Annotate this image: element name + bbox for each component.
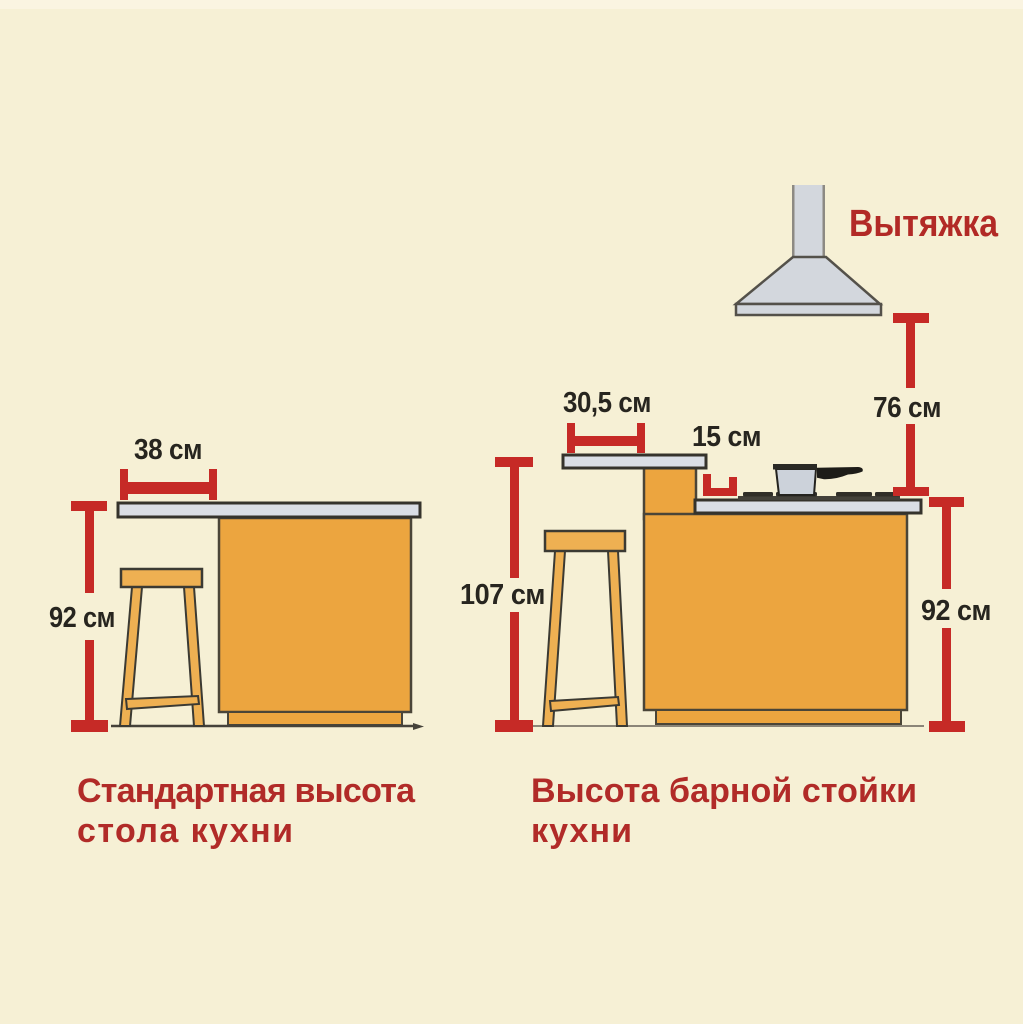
- svg-text:30,5 см: 30,5 см: [563, 387, 651, 419]
- svg-text:Высота барной стойки: Высота барной стойки: [531, 772, 917, 810]
- svg-text:92 см: 92 см: [921, 595, 991, 627]
- svg-text:Стандартная высота: Стандартная высота: [77, 772, 416, 810]
- svg-text:кухни: кухни: [531, 812, 632, 850]
- svg-text:Вытяжка: Вытяжка: [849, 203, 999, 245]
- svg-text:15 см: 15 см: [692, 421, 761, 453]
- svg-text:стола кухни: стола кухни: [77, 812, 293, 850]
- svg-text:38 см: 38 см: [134, 434, 202, 466]
- svg-text:92 см: 92 см: [49, 602, 115, 634]
- svg-text:76 см: 76 см: [873, 392, 941, 424]
- svg-text:107 см: 107 см: [460, 579, 545, 611]
